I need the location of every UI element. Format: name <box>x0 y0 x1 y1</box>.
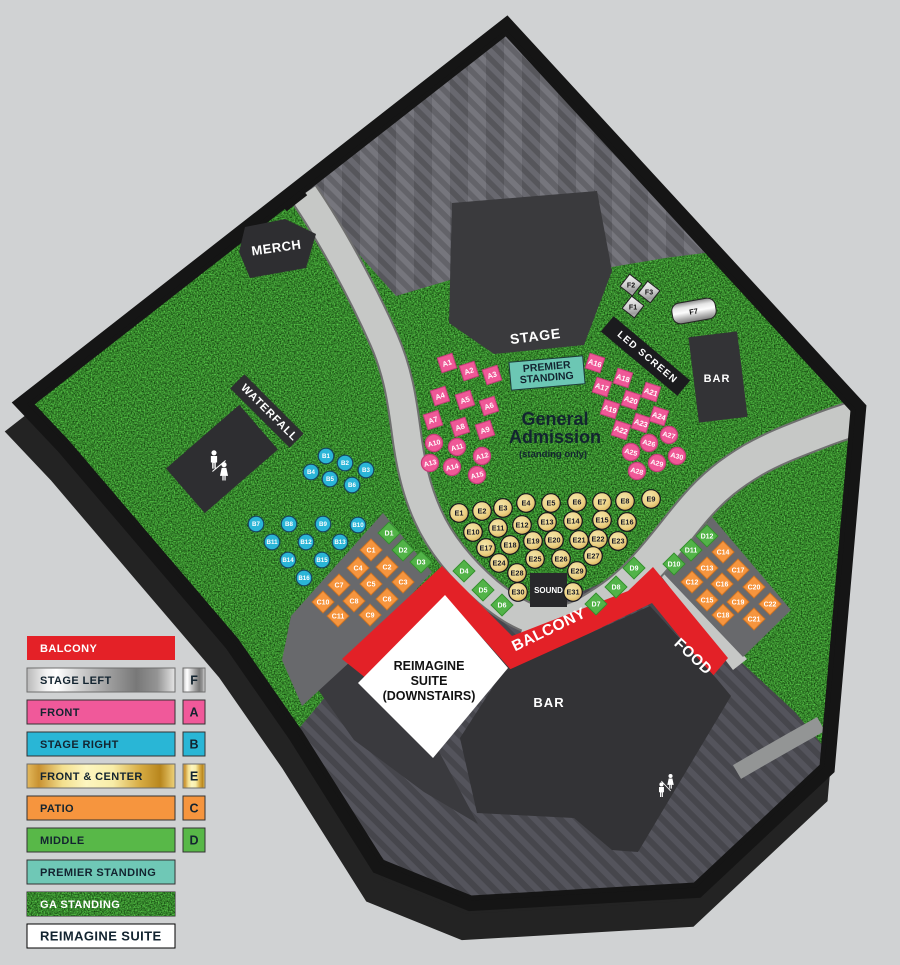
svg-text:B11: B11 <box>266 539 278 546</box>
svg-text:General: General <box>521 409 588 429</box>
svg-text:C17: C17 <box>732 568 745 575</box>
svg-text:E26: E26 <box>555 555 568 564</box>
svg-text:(standing only): (standing only) <box>519 449 587 460</box>
svg-text:MIDDLE: MIDDLE <box>40 835 85 847</box>
svg-text:E8: E8 <box>621 497 630 506</box>
svg-text:FRONT: FRONT <box>40 707 80 719</box>
svg-text:D7: D7 <box>592 602 601 609</box>
svg-text:PREMIER STANDING: PREMIER STANDING <box>40 867 156 879</box>
svg-text:REIMAGINE SUITE: REIMAGINE SUITE <box>40 929 162 944</box>
svg-text:E27: E27 <box>587 552 600 561</box>
svg-text:E6: E6 <box>573 498 582 507</box>
svg-text:F2: F2 <box>627 283 635 290</box>
svg-text:SUITE: SUITE <box>411 674 448 688</box>
svg-text:D: D <box>189 834 198 848</box>
svg-text:E28: E28 <box>511 569 524 578</box>
svg-text:C8: C8 <box>350 599 359 606</box>
svg-text:E10: E10 <box>467 528 480 537</box>
svg-text:B14: B14 <box>282 557 294 564</box>
svg-text:C1: C1 <box>367 548 376 555</box>
svg-text:D4: D4 <box>460 569 469 576</box>
svg-text:C13: C13 <box>701 566 714 573</box>
svg-text:FRONT & CENTER: FRONT & CENTER <box>40 771 143 783</box>
svg-text:E29: E29 <box>571 567 584 576</box>
svg-text:D12: D12 <box>701 534 714 541</box>
svg-text:E1: E1 <box>455 509 464 518</box>
svg-text:E12: E12 <box>516 521 529 530</box>
svg-text:E3: E3 <box>499 504 508 513</box>
svg-text:C21: C21 <box>748 617 761 624</box>
svg-text:C6: C6 <box>383 597 392 604</box>
svg-text:C5: C5 <box>367 582 376 589</box>
svg-text:E20: E20 <box>548 536 561 545</box>
svg-text:D8: D8 <box>612 585 621 592</box>
svg-text:REIMAGINE: REIMAGINE <box>394 659 465 673</box>
svg-text:E19: E19 <box>527 537 540 546</box>
svg-text:E7: E7 <box>598 498 607 507</box>
svg-text:E: E <box>190 770 198 784</box>
svg-text:E2: E2 <box>478 507 487 516</box>
svg-text:B10: B10 <box>352 522 364 529</box>
svg-text:C3: C3 <box>399 580 408 587</box>
svg-text:E21: E21 <box>573 536 586 545</box>
svg-text:B7: B7 <box>252 521 260 528</box>
svg-text:E17: E17 <box>480 544 493 553</box>
svg-text:E31: E31 <box>567 588 580 597</box>
svg-text:BAR: BAR <box>533 695 564 710</box>
svg-text:E25: E25 <box>529 555 542 564</box>
svg-text:C14: C14 <box>717 550 730 557</box>
svg-text:C9: C9 <box>366 613 375 620</box>
svg-text:D6: D6 <box>498 603 507 610</box>
svg-text:E5: E5 <box>547 499 556 508</box>
svg-text:E14: E14 <box>567 517 581 526</box>
svg-text:C: C <box>189 802 198 816</box>
svg-text:C15: C15 <box>701 598 714 605</box>
svg-text:E15: E15 <box>596 516 609 525</box>
svg-text:D3: D3 <box>417 560 426 567</box>
svg-text:C19: C19 <box>732 600 745 607</box>
svg-text:E16: E16 <box>621 518 634 527</box>
svg-text:B1: B1 <box>322 453 330 460</box>
svg-text:E9: E9 <box>647 495 656 504</box>
svg-text:D10: D10 <box>668 562 681 569</box>
svg-text:D1: D1 <box>385 531 394 538</box>
svg-text:B4: B4 <box>307 469 315 476</box>
svg-text:SOUND: SOUND <box>534 586 563 595</box>
svg-text:E18: E18 <box>504 541 517 550</box>
svg-text:B: B <box>189 738 198 752</box>
svg-text:PATIO: PATIO <box>40 803 74 815</box>
svg-text:C22: C22 <box>764 602 777 609</box>
svg-text:E13: E13 <box>541 518 554 527</box>
svg-text:F: F <box>190 674 198 688</box>
svg-text:D2: D2 <box>399 548 408 555</box>
svg-text:E23: E23 <box>612 537 625 546</box>
svg-text:STAGE RIGHT: STAGE RIGHT <box>40 739 119 751</box>
svg-text:BAR: BAR <box>704 373 731 385</box>
svg-text:E11: E11 <box>492 524 505 533</box>
svg-text:C4: C4 <box>354 566 363 573</box>
svg-text:B16: B16 <box>298 575 310 582</box>
svg-text:C10: C10 <box>317 600 330 607</box>
svg-text:E24: E24 <box>493 559 507 568</box>
svg-text:A: A <box>189 706 198 720</box>
svg-text:E4: E4 <box>522 499 532 508</box>
svg-text:B6: B6 <box>348 482 356 489</box>
svg-text:D5: D5 <box>479 588 488 595</box>
svg-text:C7: C7 <box>335 583 344 590</box>
svg-text:Admission: Admission <box>509 427 601 447</box>
svg-text:C16: C16 <box>716 582 729 589</box>
svg-text:F7: F7 <box>688 306 698 316</box>
svg-text:E22: E22 <box>592 535 605 544</box>
svg-text:B5: B5 <box>326 476 334 483</box>
svg-text:C20: C20 <box>748 585 761 592</box>
svg-text:B2: B2 <box>341 460 349 467</box>
svg-text:(DOWNSTAIRS): (DOWNSTAIRS) <box>383 689 476 703</box>
svg-text:D9: D9 <box>630 566 639 573</box>
svg-text:BALCONY: BALCONY <box>40 643 97 655</box>
svg-text:STAGE LEFT: STAGE LEFT <box>40 675 112 687</box>
svg-text:D11: D11 <box>685 548 698 555</box>
svg-text:C11: C11 <box>332 614 345 621</box>
svg-text:B15: B15 <box>316 557 328 564</box>
svg-text:C12: C12 <box>686 580 699 587</box>
svg-text:C18: C18 <box>717 613 730 620</box>
svg-text:E30: E30 <box>512 588 525 597</box>
svg-text:B12: B12 <box>300 539 312 546</box>
svg-text:B8: B8 <box>285 521 293 528</box>
svg-text:B13: B13 <box>334 539 346 546</box>
svg-text:B3: B3 <box>362 467 370 474</box>
svg-text:C2: C2 <box>383 565 392 572</box>
svg-text:F3: F3 <box>645 290 653 297</box>
svg-text:GA STANDING: GA STANDING <box>40 899 120 911</box>
svg-text:F1: F1 <box>629 305 637 312</box>
svg-text:B9: B9 <box>319 521 327 528</box>
